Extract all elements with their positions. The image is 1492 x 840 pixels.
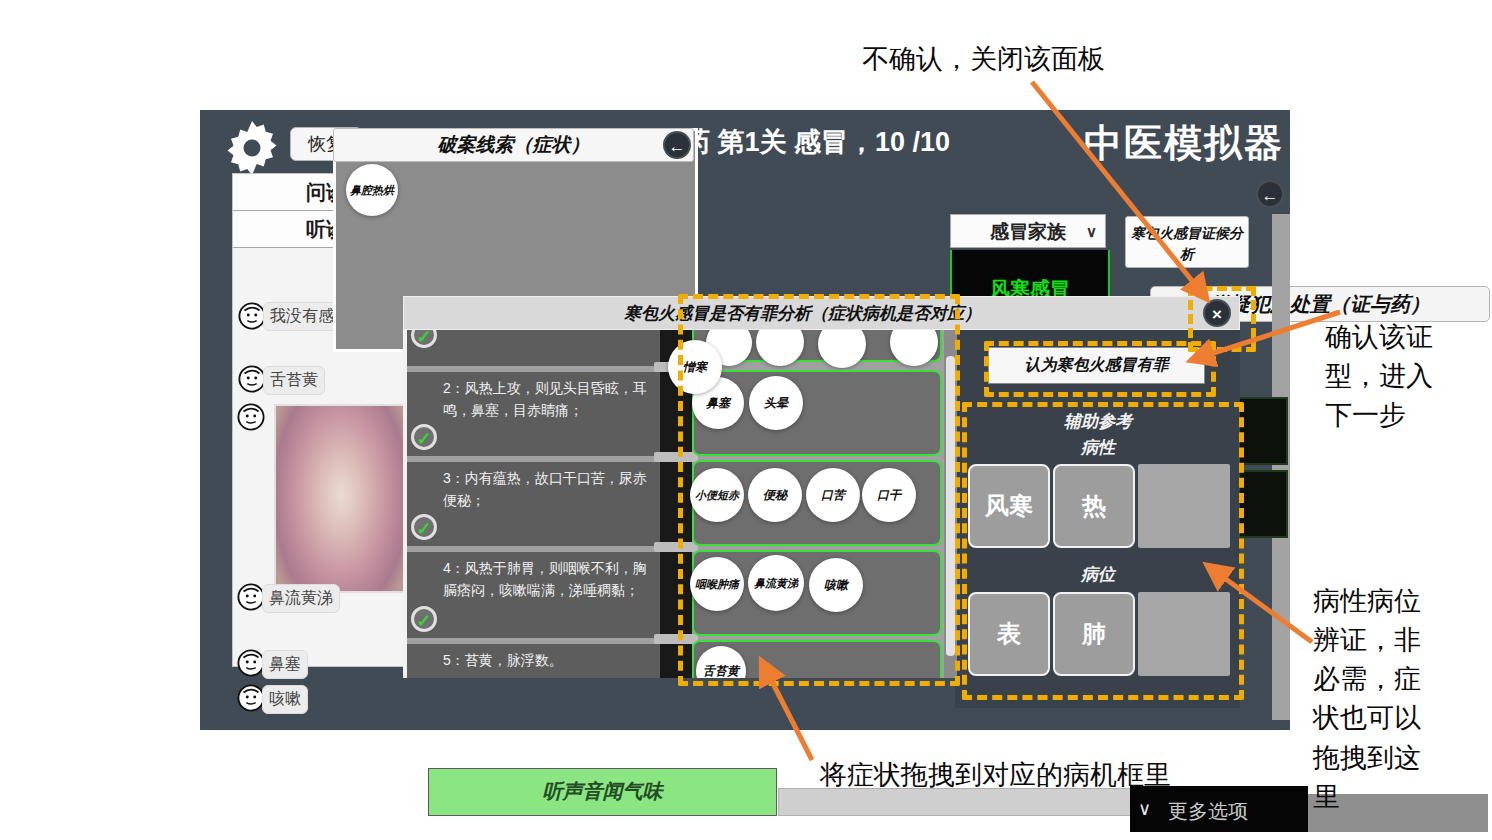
pathogenesis-item: 4：风热于肺胃，则咽喉不利，胸膈痞闷，咳嗽喘满，涕唾稠黏； ✓ [407,552,660,638]
chat-bubble: 鼻流黄涕 [262,584,340,613]
annotation-aux-note: 病性病位辨证，非必需，症状也可以拖拽到这里 [1313,582,1447,817]
pathogenesis-text: 5：苔黄，脉浮数。 [443,652,563,668]
patient-avatar [237,649,265,677]
pathogenesis-item: 2：风热上攻，则见头目昏眩，耳鸣，鼻塞，目赤睛痛； ✓ [407,372,660,456]
chat-bubble: 舌苔黄 [263,366,325,395]
patient-avatar [237,684,265,712]
chat-bubble: 鼻塞 [262,650,308,679]
patient-avatar [238,365,266,393]
check-icon: ✓ [411,424,437,450]
highlight-drop-zones [678,294,960,686]
pathogenesis-item: 5：苔黄，脉浮数。 [407,644,660,678]
annotation-close-note: 不确认，关闭该面板 [862,40,1105,79]
symptom-chip[interactable]: 鼻腔热烘 [346,164,398,216]
suspect-panel-back-button[interactable]: ← [1256,180,1284,208]
page: 恢复 药 第1关 感冒，10 /10 中医模拟器 问诊 听诊 我没有感冒 舌苔黄 [0,0,1492,840]
clue-panel-back-button[interactable]: ← [663,131,691,159]
suspect-card-highlighted[interactable]: 风寒感冒 [950,250,1110,300]
app-title: 中医模拟器 [1084,118,1284,169]
clue-panel-title: 破案线索（症状） [333,128,694,162]
family-dropdown[interactable]: 感冒家族 ∨ [950,214,1106,248]
annotation-drag-note: 将症状拖拽到对应的病机框里 [820,756,1171,795]
highlight-aux-panel [962,402,1244,700]
patient-avatar [238,302,266,330]
patient-avatar [237,403,265,431]
check-icon: ✓ [411,606,437,632]
annotation-confirm-note: 确认该证型，进入下一步 [1325,318,1457,435]
chat-bubble: 咳嗽 [262,685,308,714]
suspect-panel-scroll-strip[interactable] [1272,214,1290,720]
pathogenesis-item-partial: ✓ [407,330,660,366]
level-title: 药 第1关 感冒，10 /10 [683,124,950,160]
listen-smell-button[interactable]: 听声音闻气味 [428,768,777,816]
patient-avatar [237,583,265,611]
check-icon: ✓ [411,330,437,348]
back-arrow-icon: ← [1262,186,1279,205]
family-dropdown-label: 感冒家族 [990,221,1066,242]
highlight-confirm-button [984,341,1216,397]
chevron-down-icon: ∨ [1138,798,1151,820]
back-arrow-icon: ← [669,137,686,156]
pathogenesis-text: 2：风热上攻，则见头目昏眩，耳鸣，鼻塞，目赤睛痛； [443,380,647,418]
tongue-photo[interactable] [274,404,408,593]
settings-button[interactable] [222,118,282,178]
pathogenesis-item: 3：内有蕴热，故口干口苦，尿赤便秘； ✓ [407,462,660,546]
more-options-label: 更多选项 [1168,798,1248,825]
pathogenesis-text: 3：内有蕴热，故口干口苦，尿赤便秘； [443,470,647,508]
pathogenesis-text: 4：风热于肺胃，则咽喉不利，胸膈痞闷，咳嗽喘满，涕唾稠黏； [443,560,647,598]
syndrome-analysis-card[interactable]: 寒包火感冒证候分析 [1125,216,1249,268]
check-icon: ✓ [411,514,437,540]
chevron-down-icon: ∨ [1086,215,1097,248]
